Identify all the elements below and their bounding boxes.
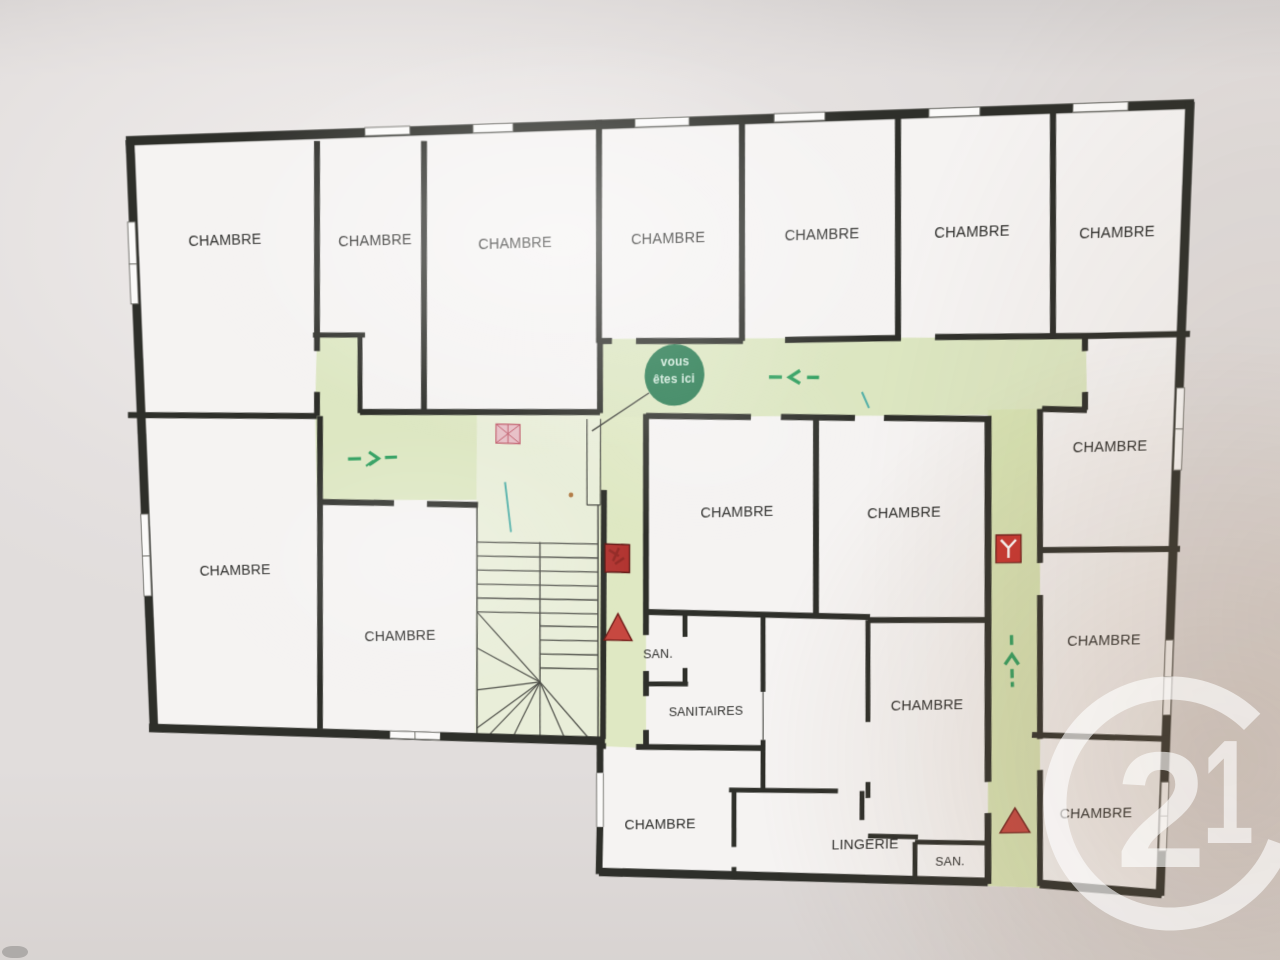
svg-text:1: 1 [1202,710,1254,875]
svg-text:2: 2 [1116,718,1206,902]
